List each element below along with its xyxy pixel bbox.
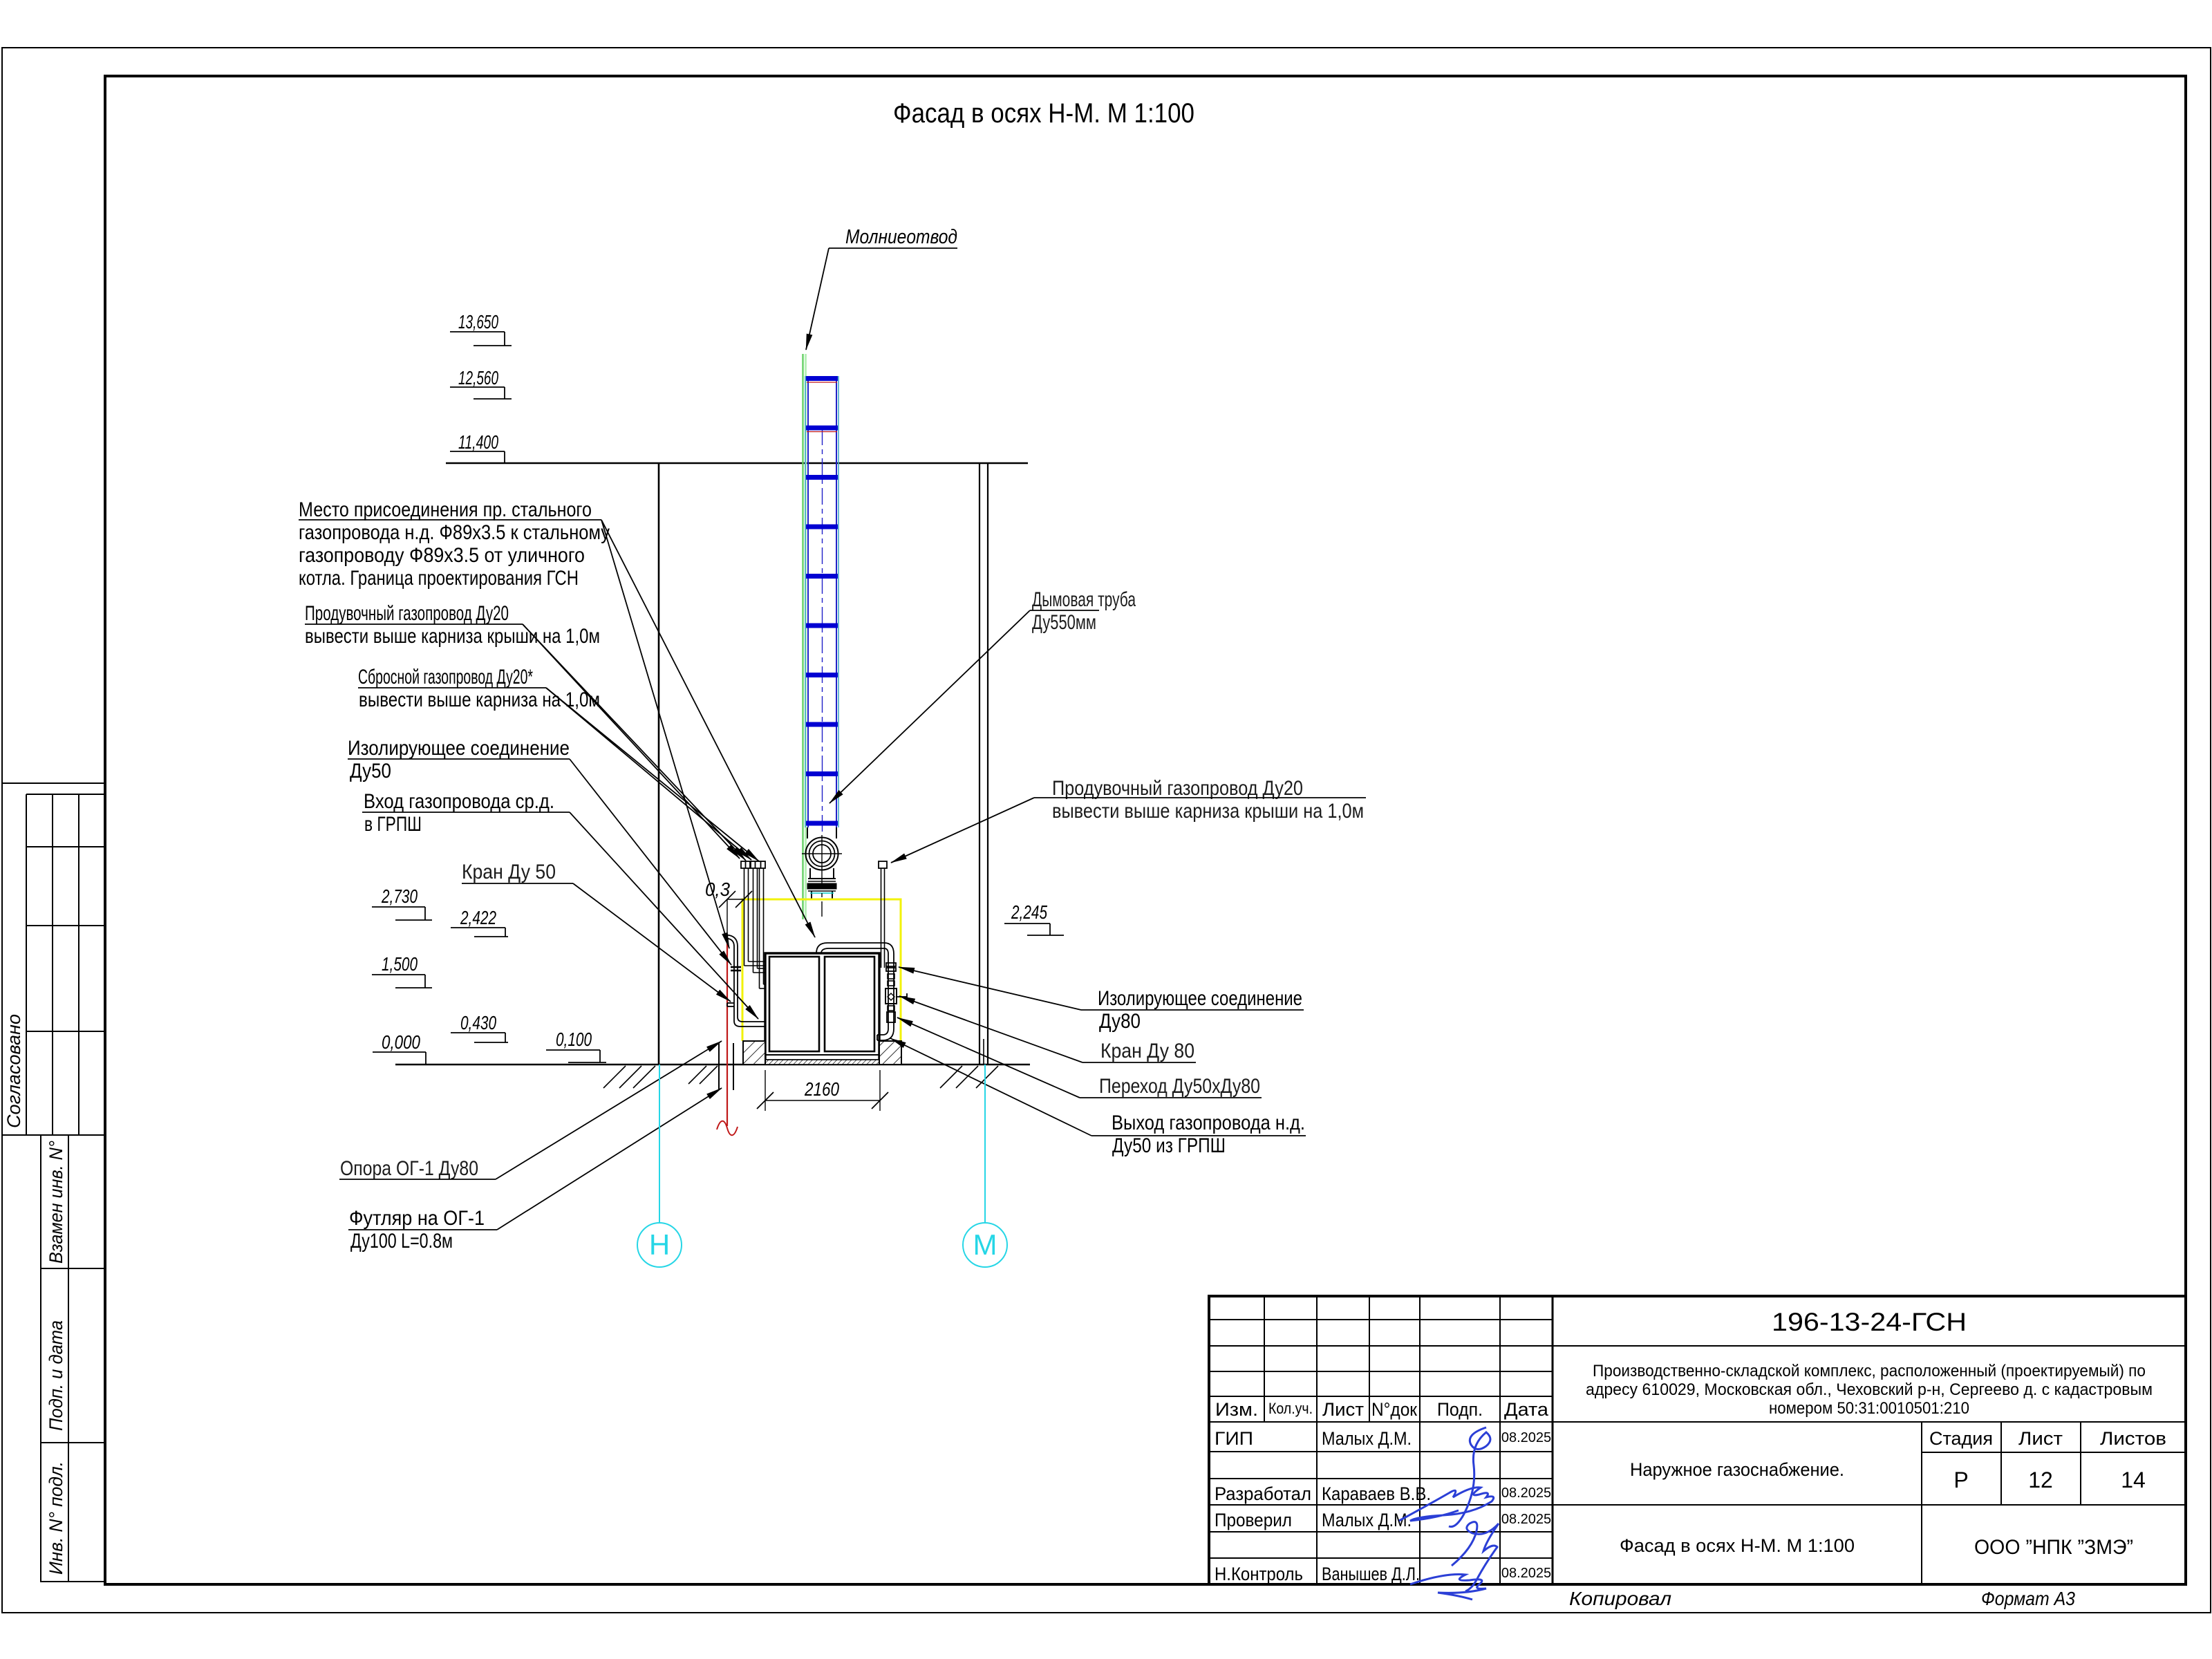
- svg-text:вывести выше карниза крыши на: вывести выше карниза крыши на 1,0м: [1052, 800, 1364, 823]
- svg-text:0,000: 0,000: [382, 1031, 420, 1053]
- svg-text:Формат А3: Формат А3: [1981, 1588, 2075, 1609]
- svg-text:Лист: Лист: [1322, 1399, 1364, 1420]
- svg-text:Малых Д.М.: Малых Д.М.: [1322, 1428, 1412, 1449]
- svg-text:Ванышев Д.Л.: Ванышев Д.Л.: [1322, 1564, 1420, 1584]
- svg-text:Наружное газоснабжение.: Наружное газоснабжение.: [1630, 1459, 1844, 1480]
- svg-text:ООО ”НПК ”ЗМЭ”: ООО ”НПК ”ЗМЭ”: [1974, 1536, 2133, 1559]
- svg-text:Молниеотвод: Молниеотвод: [845, 226, 957, 248]
- svg-text:Фасад в осях Н-М. М 1:100: Фасад в осях Н-М. М 1:100: [893, 98, 1194, 129]
- svg-text:Стадия: Стадия: [1929, 1428, 1993, 1449]
- svg-text:вывести выше карниза крыши на: вывести выше карниза крыши на 1,0м: [305, 625, 600, 648]
- svg-text:0,430: 0,430: [460, 1012, 496, 1033]
- svg-text:Н: Н: [649, 1228, 670, 1261]
- svg-text:1,500: 1,500: [382, 953, 418, 975]
- svg-text:2,422: 2,422: [460, 907, 496, 928]
- svg-text:12: 12: [2028, 1468, 2053, 1492]
- svg-text:Производственно-складской комп: Производственно-складской комплекс, расп…: [1593, 1362, 2146, 1380]
- svg-text:Малых Д.М.: Малых Д.М.: [1322, 1510, 1412, 1530]
- svg-text:в ГРПШ: в ГРПШ: [364, 813, 422, 836]
- svg-text:14: 14: [2121, 1468, 2146, 1492]
- svg-text:2160: 2160: [804, 1078, 839, 1100]
- svg-text:Листов: Листов: [2100, 1428, 2166, 1449]
- svg-text:Н.Контроль: Н.Контроль: [1215, 1564, 1303, 1584]
- svg-text:Кран Ду 80: Кран Ду 80: [1100, 1040, 1194, 1062]
- svg-text:котла. Граница проектирования: котла. Граница проектирования ГСН: [299, 567, 579, 590]
- svg-text:Продувочный газопровод Ду20: Продувочный газопровод Ду20: [305, 602, 509, 625]
- svg-text:газопровода н.д. Ф89х3.5 к ста: газопровода н.д. Ф89х3.5 к стальному: [299, 521, 610, 544]
- svg-text:13,650: 13,650: [458, 311, 498, 332]
- svg-text:Опора ОГ-1 Ду80: Опора ОГ-1 Ду80: [340, 1157, 478, 1180]
- svg-text:0,100: 0,100: [556, 1029, 592, 1050]
- svg-text:Согласовано: Согласовано: [3, 1014, 24, 1128]
- svg-text:Сбросной газопровод Ду20*: Сбросной газопровод Ду20*: [358, 666, 533, 688]
- svg-text:Фасад в осях Н-М. М 1:100: Фасад в осях Н-М. М 1:100: [1620, 1535, 1855, 1556]
- svg-text:Подп.: Подп.: [1437, 1399, 1483, 1420]
- svg-text:Кол.уч.: Кол.уч.: [1268, 1400, 1313, 1417]
- svg-text:Продувочный газопровод Ду20: Продувочный газопровод Ду20: [1052, 777, 1303, 800]
- svg-text:ГИП: ГИП: [1215, 1428, 1253, 1449]
- svg-text:Взамен инв. N°: Взамен инв. N°: [46, 1141, 66, 1264]
- svg-text:12,560: 12,560: [458, 367, 498, 388]
- svg-text:08.2025: 08.2025: [1501, 1485, 1551, 1501]
- svg-text:номером 50:31:0010501:210: номером 50:31:0010501:210: [1769, 1399, 1969, 1418]
- svg-text:0,3: 0,3: [705, 879, 730, 900]
- svg-text:Ду80: Ду80: [1099, 1010, 1141, 1033]
- svg-text:2,245: 2,245: [1011, 901, 1047, 923]
- svg-text:Дата: Дата: [1504, 1399, 1549, 1420]
- svg-text:адресу 610029, Московская обл.: адресу 610029, Московская обл., Чеховски…: [1586, 1380, 2153, 1399]
- svg-text:08.2025: 08.2025: [1501, 1430, 1551, 1445]
- svg-text:Изолирующее соединение: Изолирующее соединение: [348, 737, 570, 760]
- svg-text:Ду50: Ду50: [350, 760, 391, 782]
- svg-text:Ду50 из ГРПШ: Ду50 из ГРПШ: [1112, 1134, 1226, 1157]
- svg-text:Выход газопровода н.д.: Выход газопровода н.д.: [1112, 1112, 1305, 1134]
- svg-text:Подп. и дата: Подп. и дата: [46, 1320, 66, 1431]
- svg-text:Инв. N° подл.: Инв. N° подл.: [46, 1461, 66, 1575]
- svg-text:Р: Р: [1953, 1468, 1968, 1492]
- svg-text:Вход газопровода ср.д.: Вход газопровода ср.д.: [364, 790, 554, 813]
- svg-text:М: М: [973, 1228, 997, 1261]
- svg-text:Место присоединения пр. стальн: Место присоединения пр. стального: [299, 498, 592, 521]
- svg-text:Копировал: Копировал: [1569, 1588, 1671, 1609]
- svg-text:Кран Ду 50: Кран Ду 50: [462, 861, 556, 883]
- svg-text:Проверил: Проверил: [1215, 1510, 1292, 1530]
- svg-text:Изолирующее соединение: Изолирующее соединение: [1098, 987, 1302, 1010]
- svg-text:Ду100 L=0.8м: Ду100 L=0.8м: [350, 1230, 453, 1253]
- svg-text:08.2025: 08.2025: [1501, 1566, 1551, 1581]
- svg-text:Футляр на ОГ-1: Футляр на ОГ-1: [349, 1207, 485, 1230]
- svg-text:196-13-24-ГСН: 196-13-24-ГСН: [1772, 1308, 1967, 1336]
- svg-text:Дымовая труба: Дымовая труба: [1032, 588, 1136, 611]
- svg-text:Ду550мм: Ду550мм: [1032, 611, 1096, 634]
- svg-text:Изм.: Изм.: [1215, 1399, 1258, 1420]
- svg-text:Караваев В.В.: Караваев В.В.: [1322, 1483, 1431, 1504]
- svg-text:11,400: 11,400: [458, 431, 498, 453]
- svg-text:2,730: 2,730: [381, 885, 418, 907]
- svg-text:08.2025: 08.2025: [1501, 1512, 1551, 1527]
- svg-text:Лист: Лист: [2018, 1428, 2063, 1449]
- svg-text:Переход Ду50хДу80: Переход Ду50хДу80: [1099, 1075, 1260, 1098]
- svg-text:вывести выше карниза на 1,0м: вывести выше карниза на 1,0м: [359, 688, 600, 711]
- svg-text:N°док: N°док: [1371, 1399, 1417, 1420]
- svg-text:Разработал: Разработал: [1215, 1483, 1311, 1504]
- svg-text:газопроводу Ф89х3.5 от уличног: газопроводу Ф89х3.5 от уличного: [299, 544, 585, 567]
